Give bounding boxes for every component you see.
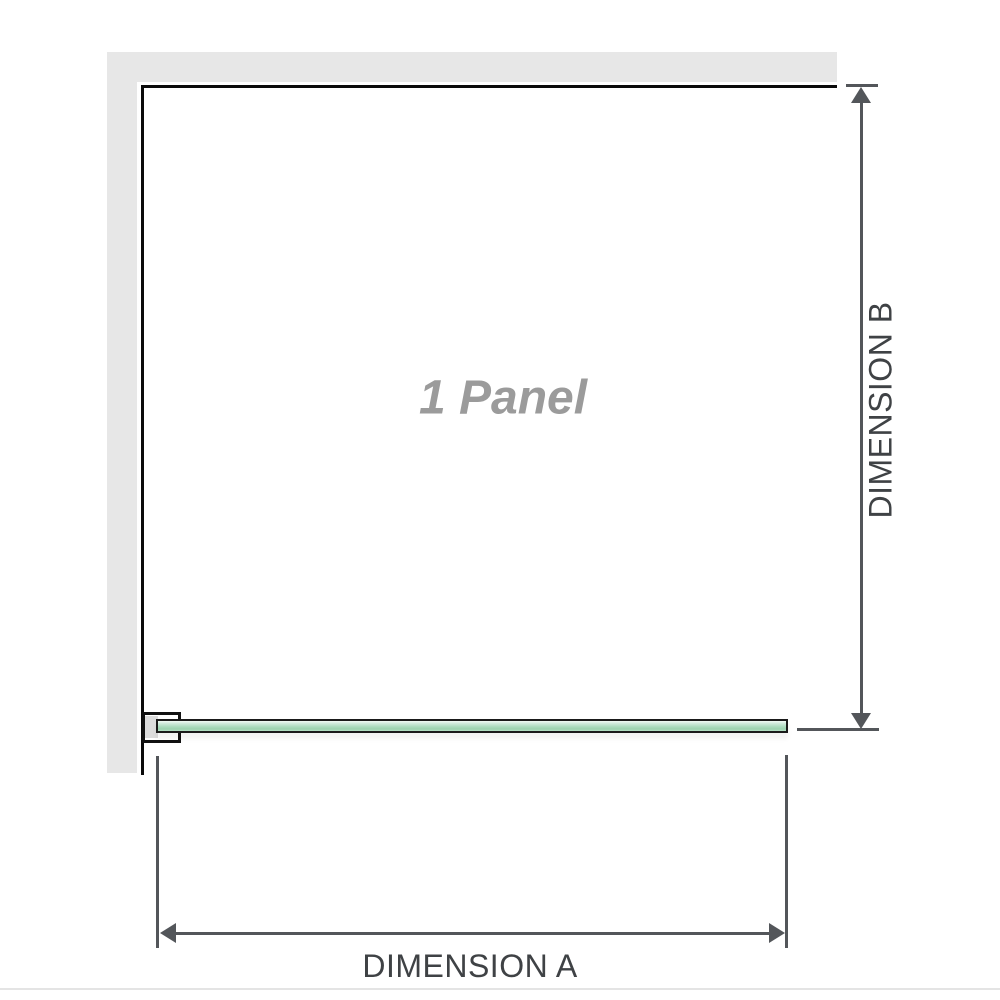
bottom-divider-line [0,988,1000,990]
dimension-a-label: DIMENSION A [362,948,577,985]
wall-edge-left-line [141,85,144,775]
dimension-b-label: DIMENSION B [863,301,900,518]
arrow-up-icon [851,87,871,103]
arrow-left-icon [160,923,176,943]
glass-panel [156,719,788,733]
wall-left-strip [107,52,137,773]
arrow-right-icon [769,923,785,943]
dimension-a-line [172,932,772,935]
arrow-down-icon [851,713,871,729]
wall-edge-top-line [141,85,837,88]
dimension-a-left-tick [156,756,159,948]
diagram-canvas: 1 Panel DIMENSION B DIMENSION A [0,0,1000,1000]
dimension-a-right-tick [785,755,788,948]
panel-count-label: 1 Panel [419,371,587,426]
wall-top-strip [107,52,837,82]
